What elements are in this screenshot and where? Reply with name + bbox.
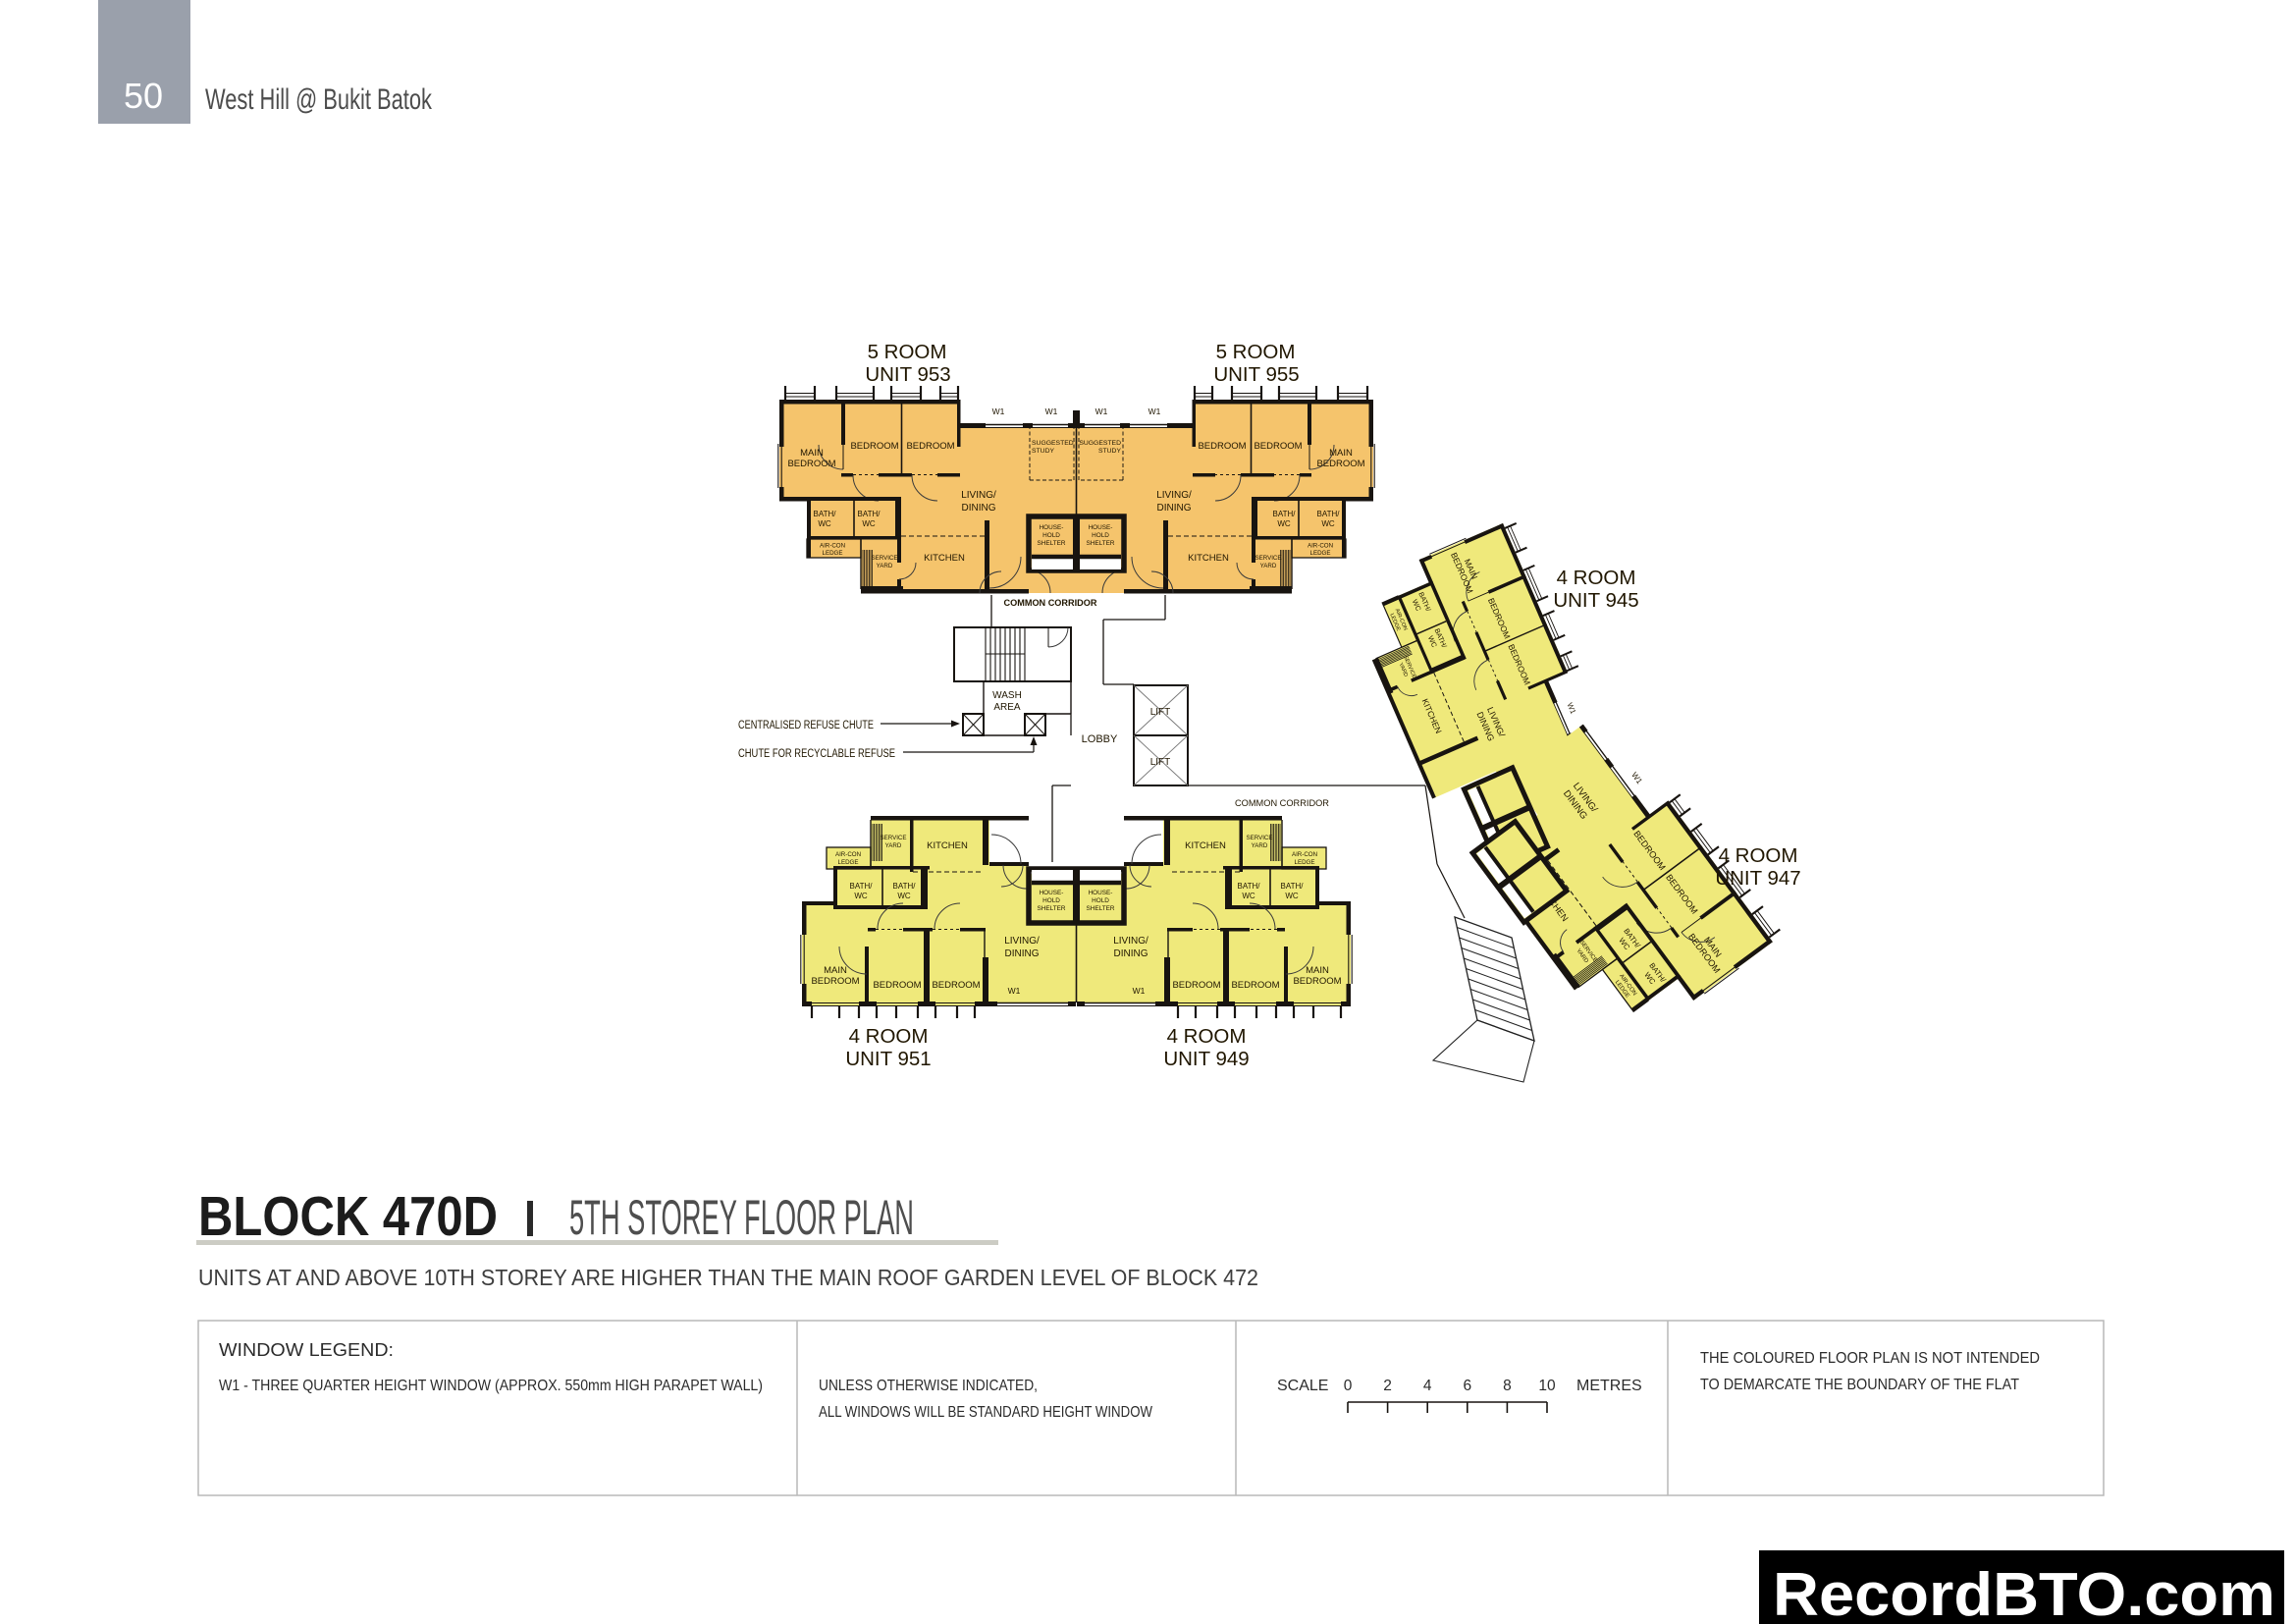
svg-text:LIVING/: LIVING/ [1156,490,1192,501]
svg-text:THE COLOURED FLOOR PLAN IS NOT: THE COLOURED FLOOR PLAN IS NOT INTENDED [1700,1350,2040,1367]
svg-text:UNLESS OTHERWISE INDICATED,: UNLESS OTHERWISE INDICATED, [819,1378,1038,1394]
svg-text:SERVICE: SERVICE [871,555,897,562]
svg-text:8: 8 [1503,1378,1512,1394]
svg-text:WC: WC [1242,892,1255,900]
svg-text:HOUSE-: HOUSE- [1089,890,1113,896]
svg-text:5 ROOM: 5 ROOM [868,341,947,363]
svg-text:KITCHEN: KITCHEN [1185,840,1226,851]
svg-text:KITCHEN: KITCHEN [927,840,968,851]
svg-text:SHELTER: SHELTER [1037,540,1065,547]
svg-text:MAIN: MAIN [800,448,824,459]
svg-text:WC: WC [1277,519,1291,528]
svg-text:METRES: METRES [1576,1378,1642,1394]
svg-text:West Hill @ Bukit Batok: West Hill @ Bukit Batok [205,83,433,116]
svg-text:MAIN: MAIN [824,965,847,976]
svg-text:0: 0 [1344,1378,1353,1394]
svg-text:BATH/: BATH/ [1281,882,1305,891]
svg-text:5TH STOREY FLOOR PLAN: 5TH STOREY FLOOR PLAN [569,1190,914,1245]
svg-text:LIVING/: LIVING/ [1004,936,1040,947]
svg-text:4 ROOM: 4 ROOM [1167,1025,1247,1048]
svg-text:BEDROOM: BEDROOM [1172,980,1220,991]
svg-text:AIR-CON: AIR-CON [820,543,845,550]
svg-text:BATH/: BATH/ [814,510,837,518]
svg-text:UNIT 949: UNIT 949 [1163,1048,1249,1070]
svg-text:SERVICE: SERVICE [1246,835,1272,841]
svg-text:HOLD: HOLD [1042,897,1060,904]
svg-text:WC: WC [818,519,831,528]
svg-text:WASH: WASH [992,690,1022,701]
svg-text:BEDROOM: BEDROOM [787,459,835,469]
svg-text:SERVICE: SERVICE [1255,555,1281,562]
svg-text:4 ROOM: 4 ROOM [849,1025,929,1048]
svg-text:AIR-CON: AIR-CON [1292,851,1317,858]
svg-text:BEDROOM: BEDROOM [1254,441,1302,452]
svg-text:KITCHEN: KITCHEN [1188,553,1229,564]
svg-text:BEDROOM: BEDROOM [1293,976,1341,987]
svg-text:DINING: DINING [1114,948,1148,959]
svg-text:BEDROOM: BEDROOM [873,980,921,991]
svg-text:AIR-CON: AIR-CON [1308,543,1333,550]
svg-text:DINING: DINING [1005,948,1040,959]
svg-text:COMMON CORRIDOR: COMMON CORRIDOR [1235,798,1329,809]
svg-text:DINING: DINING [962,503,996,514]
svg-text:STUDY: STUDY [1098,448,1122,455]
svg-text:BATH/: BATH/ [850,882,874,891]
svg-text:HOLD: HOLD [1042,532,1060,539]
svg-text:LEDGE: LEDGE [1310,550,1331,557]
svg-text:UNIT 955: UNIT 955 [1213,363,1299,386]
svg-text:STUDY: STUDY [1032,448,1055,455]
svg-text:WINDOW LEGEND:: WINDOW LEGEND: [219,1339,394,1360]
svg-text:LIVING/: LIVING/ [1113,936,1148,947]
svg-text:LEDGE: LEDGE [838,859,859,866]
svg-text:TO DEMARCATE THE BOUNDARY OF T: TO DEMARCATE THE BOUNDARY OF THE FLAT [1700,1377,2019,1393]
svg-text:BEDROOM: BEDROOM [906,441,954,452]
svg-text:5 ROOM: 5 ROOM [1216,341,1296,363]
svg-text:W1: W1 [1095,406,1108,416]
svg-text:ALL WINDOWS WILL BE STANDARD H: ALL WINDOWS WILL BE STANDARD HEIGHT WIND… [819,1404,1153,1421]
svg-text:SERVICE: SERVICE [880,835,906,841]
svg-text:KITCHEN: KITCHEN [924,553,965,564]
svg-text:W1: W1 [992,406,1005,416]
svg-text:BATH/: BATH/ [1317,510,1341,518]
svg-text:SHELTER: SHELTER [1086,540,1114,547]
svg-text:LEDGE: LEDGE [823,550,843,557]
svg-text:LIFT: LIFT [1150,707,1171,718]
svg-text:BEDROOM: BEDROOM [1231,980,1279,991]
svg-text:BATH/: BATH/ [893,882,917,891]
svg-text:UNIT 945: UNIT 945 [1553,589,1638,612]
svg-text:SHELTER: SHELTER [1086,905,1114,912]
svg-text:LIVING/: LIVING/ [961,490,996,501]
svg-text:HOLD: HOLD [1092,532,1109,539]
svg-text:YARD: YARD [1252,842,1268,849]
svg-text:BEDROOM: BEDROOM [1198,441,1246,452]
svg-text:YARD: YARD [885,842,902,849]
svg-text:RecordBTO.com: RecordBTO.com [1773,1561,2275,1624]
svg-text:AIR-CON: AIR-CON [835,851,861,858]
svg-text:YARD: YARD [877,563,893,569]
svg-text:WC: WC [897,892,911,900]
svg-text:BATH/: BATH/ [858,510,881,518]
svg-text:WC: WC [854,892,868,900]
svg-text:HOUSE-: HOUSE- [1089,524,1113,531]
svg-text:WC: WC [1321,519,1335,528]
svg-text:WC: WC [1285,892,1299,900]
svg-text:HOUSE-: HOUSE- [1040,524,1064,531]
svg-text:50: 50 [124,76,163,116]
svg-text:MAIN: MAIN [1306,965,1329,976]
svg-text:UNIT 947: UNIT 947 [1715,867,1800,890]
svg-text:W1: W1 [1133,986,1146,996]
svg-text:LEDGE: LEDGE [1295,859,1315,866]
svg-text:UNIT 953: UNIT 953 [865,363,950,386]
svg-text:SHELTER: SHELTER [1037,905,1065,912]
svg-text:SUGGESTED: SUGGESTED [1079,440,1121,447]
svg-text:BEDROOM: BEDROOM [811,976,859,987]
svg-text:BATH/: BATH/ [1238,882,1261,891]
svg-text:CENTRALISED REFUSE CHUTE: CENTRALISED REFUSE CHUTE [738,720,874,731]
svg-text:HOUSE-: HOUSE- [1040,890,1064,896]
svg-text:SUGGESTED: SUGGESTED [1032,440,1074,447]
svg-text:SCALE: SCALE [1277,1378,1328,1394]
svg-text:WC: WC [862,519,876,528]
svg-text:4: 4 [1423,1378,1432,1394]
svg-text:HOLD: HOLD [1092,897,1109,904]
svg-text:CHUTE FOR RECYCLABLE REFUSE: CHUTE FOR RECYCLABLE REFUSE [738,748,895,760]
svg-text:W1 - THREE QUARTER HEIGHT WIND: W1 - THREE QUARTER HEIGHT WINDOW (APPROX… [219,1378,763,1394]
svg-text:2: 2 [1383,1378,1392,1394]
svg-text:LIFT: LIFT [1150,757,1171,768]
svg-text:MAIN: MAIN [1329,448,1353,459]
svg-text:BLOCK 470D: BLOCK 470D [198,1185,498,1248]
svg-text:W1: W1 [1045,406,1058,416]
svg-text:W1: W1 [1148,406,1161,416]
svg-text:BEDROOM: BEDROOM [850,441,898,452]
svg-text:LOBBY: LOBBY [1082,733,1118,745]
svg-text:10: 10 [1538,1378,1556,1394]
svg-text:4 ROOM: 4 ROOM [1719,844,1798,867]
svg-text:COMMON CORRIDOR: COMMON CORRIDOR [1004,598,1097,609]
svg-text:4 ROOM: 4 ROOM [1557,567,1636,589]
svg-text:BEDROOM: BEDROOM [1316,459,1364,469]
svg-text:BATH/: BATH/ [1273,510,1297,518]
svg-text:DINING: DINING [1157,503,1192,514]
svg-text:UNIT 951: UNIT 951 [845,1048,931,1070]
svg-text:UNITS AT AND ABOVE 10TH STOREY: UNITS AT AND ABOVE 10TH STOREY ARE HIGHE… [198,1265,1258,1290]
svg-text:AREA: AREA [993,702,1021,713]
svg-text:6: 6 [1463,1378,1471,1394]
svg-text:W1: W1 [1008,986,1021,996]
svg-text:BEDROOM: BEDROOM [932,980,980,991]
svg-text:YARD: YARD [1260,563,1277,569]
